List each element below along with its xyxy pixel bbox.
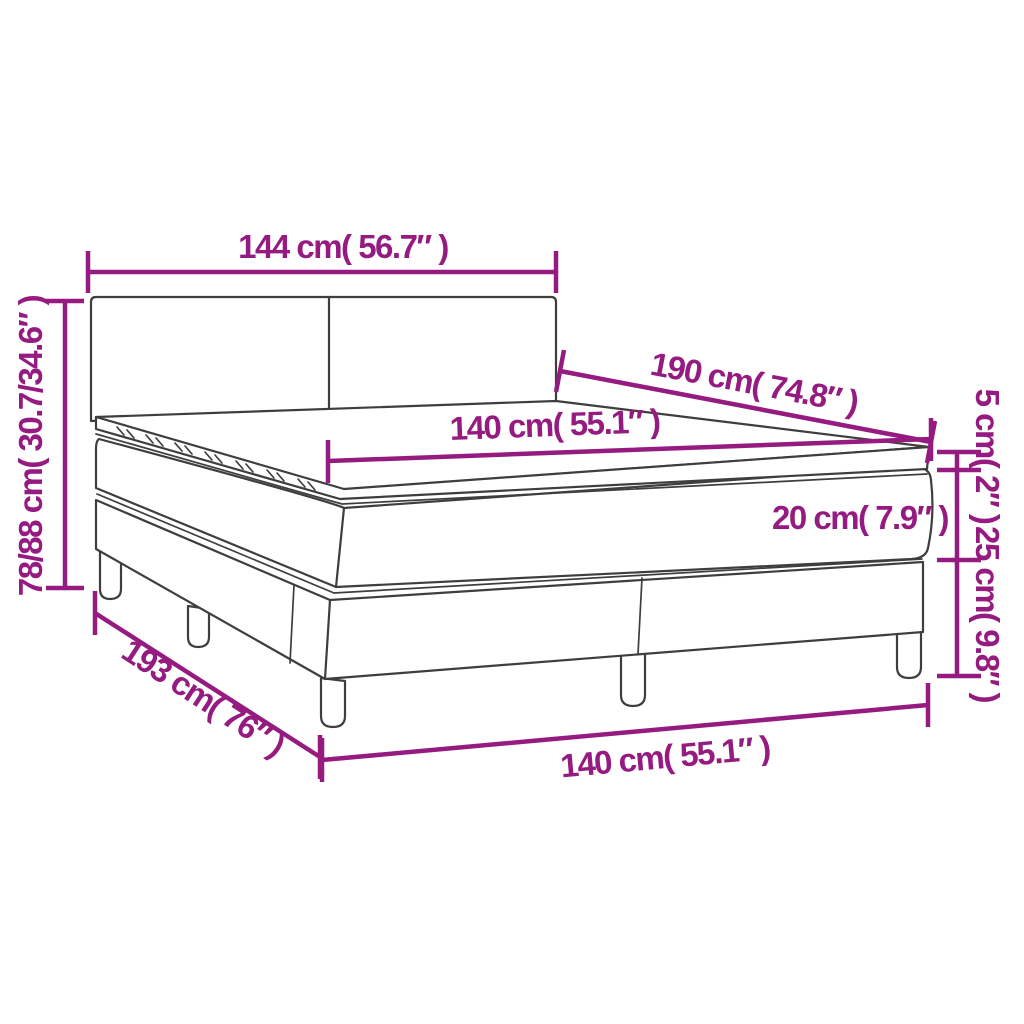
bed-leg-front-right (897, 631, 921, 678)
dim-label-base-height: 25 cm( 9.8″ ) (969, 526, 1006, 703)
dim-label-headboard-width: 144 cm( 56.7″ ) (238, 228, 448, 265)
bed-dimension-diagram: 144 cm( 56.7″ ) 78/88 cm( 30.7/34.6″ ) 1… (0, 0, 1024, 1024)
bed-leg-front-middle (621, 652, 645, 706)
bed-leg-front-left (321, 678, 345, 727)
dim-label-topper-height: 5 cm( 2″ ) (969, 389, 1006, 524)
dim-label-mattress-height: 20 cm( 7.9″ ) (772, 499, 949, 536)
dim-label-overall-height: 78/88 cm( 30.7/34.6″ ) (12, 295, 49, 596)
